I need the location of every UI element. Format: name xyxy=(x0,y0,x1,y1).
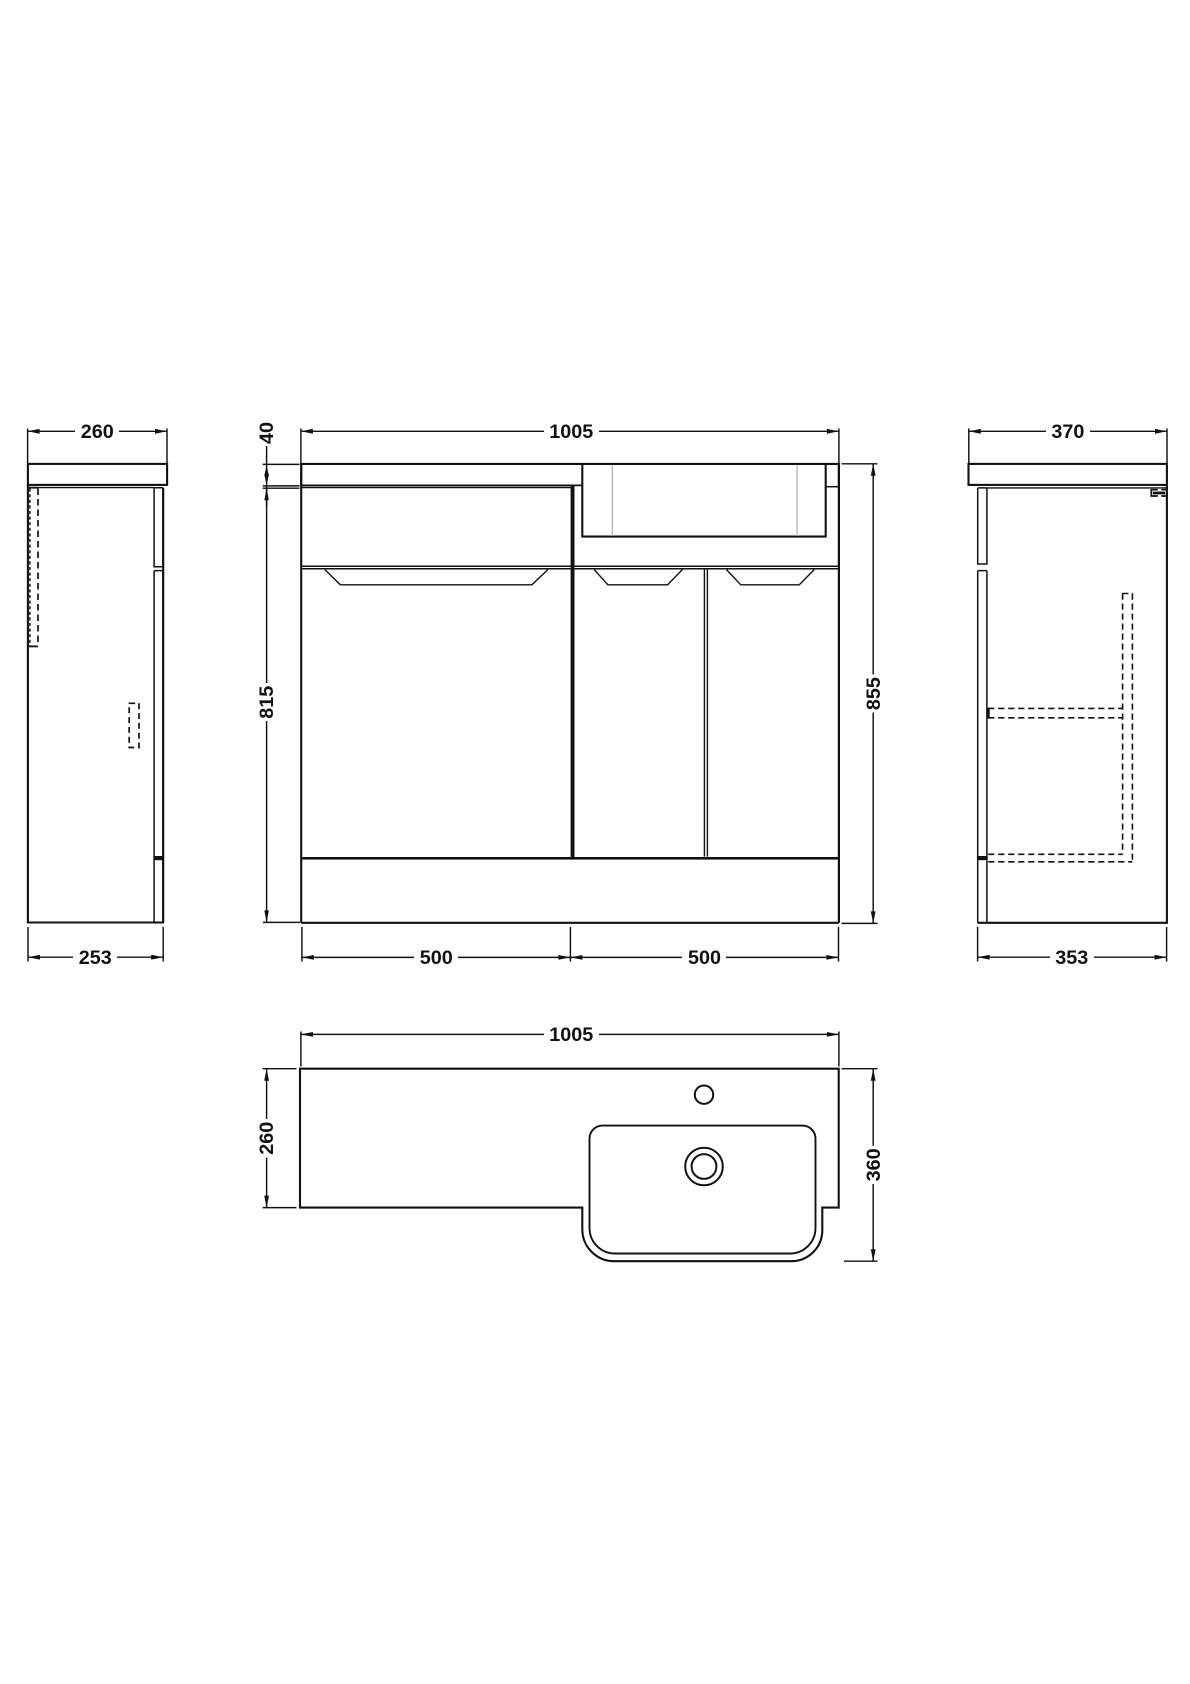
svg-text:353: 353 xyxy=(1055,947,1088,969)
svg-text:1005: 1005 xyxy=(549,421,593,443)
svg-text:815: 815 xyxy=(256,686,278,719)
svg-text:855: 855 xyxy=(863,677,885,710)
svg-text:370: 370 xyxy=(1051,421,1084,443)
svg-text:500: 500 xyxy=(420,947,453,969)
svg-text:253: 253 xyxy=(79,947,112,969)
svg-text:500: 500 xyxy=(688,947,721,969)
svg-text:40: 40 xyxy=(256,422,278,444)
svg-text:360: 360 xyxy=(863,1148,885,1181)
svg-text:260: 260 xyxy=(256,1122,278,1155)
svg-text:1005: 1005 xyxy=(549,1024,593,1046)
svg-text:260: 260 xyxy=(81,421,114,443)
